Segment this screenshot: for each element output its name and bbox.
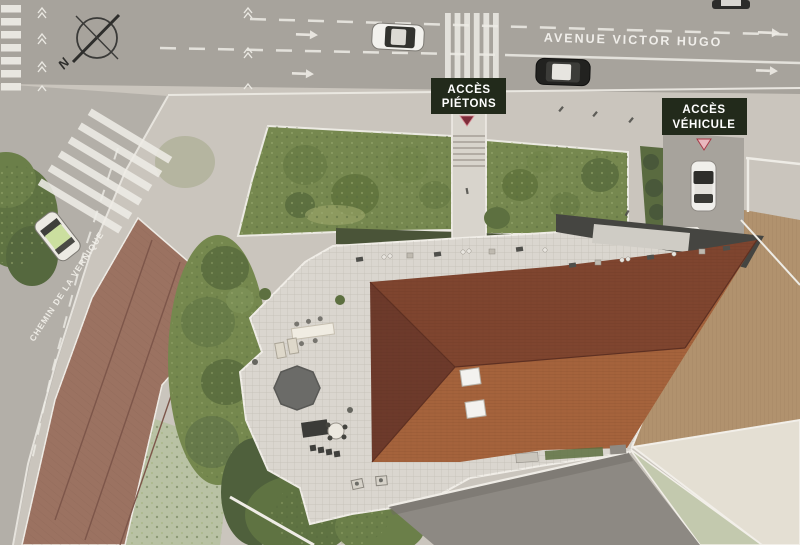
car-roof xyxy=(391,29,407,46)
car-rear-window xyxy=(694,194,713,203)
acces-pietons-line1: ACCÈS xyxy=(447,83,490,96)
balcony-item xyxy=(489,249,495,254)
small-item xyxy=(252,359,258,365)
bush xyxy=(643,154,659,170)
balcony-chair xyxy=(351,478,364,489)
bush-near-path xyxy=(484,207,510,229)
site-plan-canvas: AVENUE VICTOR HUGO CHEMIN DE LA VERNIQUE… xyxy=(0,0,800,545)
acces-pietons-line2: PIÉTONS xyxy=(442,97,496,110)
acces-vehicule-line2: VÉHICULE xyxy=(673,118,736,131)
car-avenue-white xyxy=(371,23,424,52)
small-item xyxy=(347,407,353,413)
balcony-item xyxy=(407,253,413,258)
garden-texture xyxy=(238,126,452,236)
balcony-item xyxy=(382,255,386,259)
balcony-item xyxy=(595,260,601,265)
balcony-item xyxy=(461,250,465,254)
balcony-item xyxy=(620,258,624,262)
skylight xyxy=(460,368,481,386)
bush xyxy=(649,204,665,220)
car-roof xyxy=(695,184,713,194)
planter xyxy=(259,288,271,300)
shade-canopy-octagon xyxy=(274,366,320,410)
car-driveway-white xyxy=(691,161,716,211)
acces-vehicule-line1: ACCÈS xyxy=(682,103,725,116)
bush xyxy=(645,179,663,197)
pedestrian-path xyxy=(452,108,486,240)
car-windshield xyxy=(694,171,714,184)
car-avenue-partial xyxy=(712,0,750,9)
balcony-chair xyxy=(376,476,388,486)
car-roof xyxy=(721,0,741,6)
round-table-set xyxy=(326,423,348,441)
faint-tree xyxy=(155,136,215,188)
planter xyxy=(335,295,345,305)
skylight xyxy=(465,400,486,418)
balcony-box xyxy=(610,444,627,454)
balcony-item xyxy=(626,257,630,261)
balcony-box xyxy=(516,452,539,463)
balcony-item xyxy=(672,252,676,256)
path-shape xyxy=(452,108,486,240)
balcony-item xyxy=(699,249,705,254)
car-roof xyxy=(552,64,572,81)
balcony-item xyxy=(543,248,547,252)
site-plan-aerial-view: AVENUE VICTOR HUGO CHEMIN DE LA VERNIQUE… xyxy=(0,0,800,545)
balcony-item xyxy=(388,254,392,258)
garden-north-west xyxy=(238,126,452,236)
balcony-item xyxy=(467,249,471,253)
car-avenue-dark xyxy=(536,58,591,86)
